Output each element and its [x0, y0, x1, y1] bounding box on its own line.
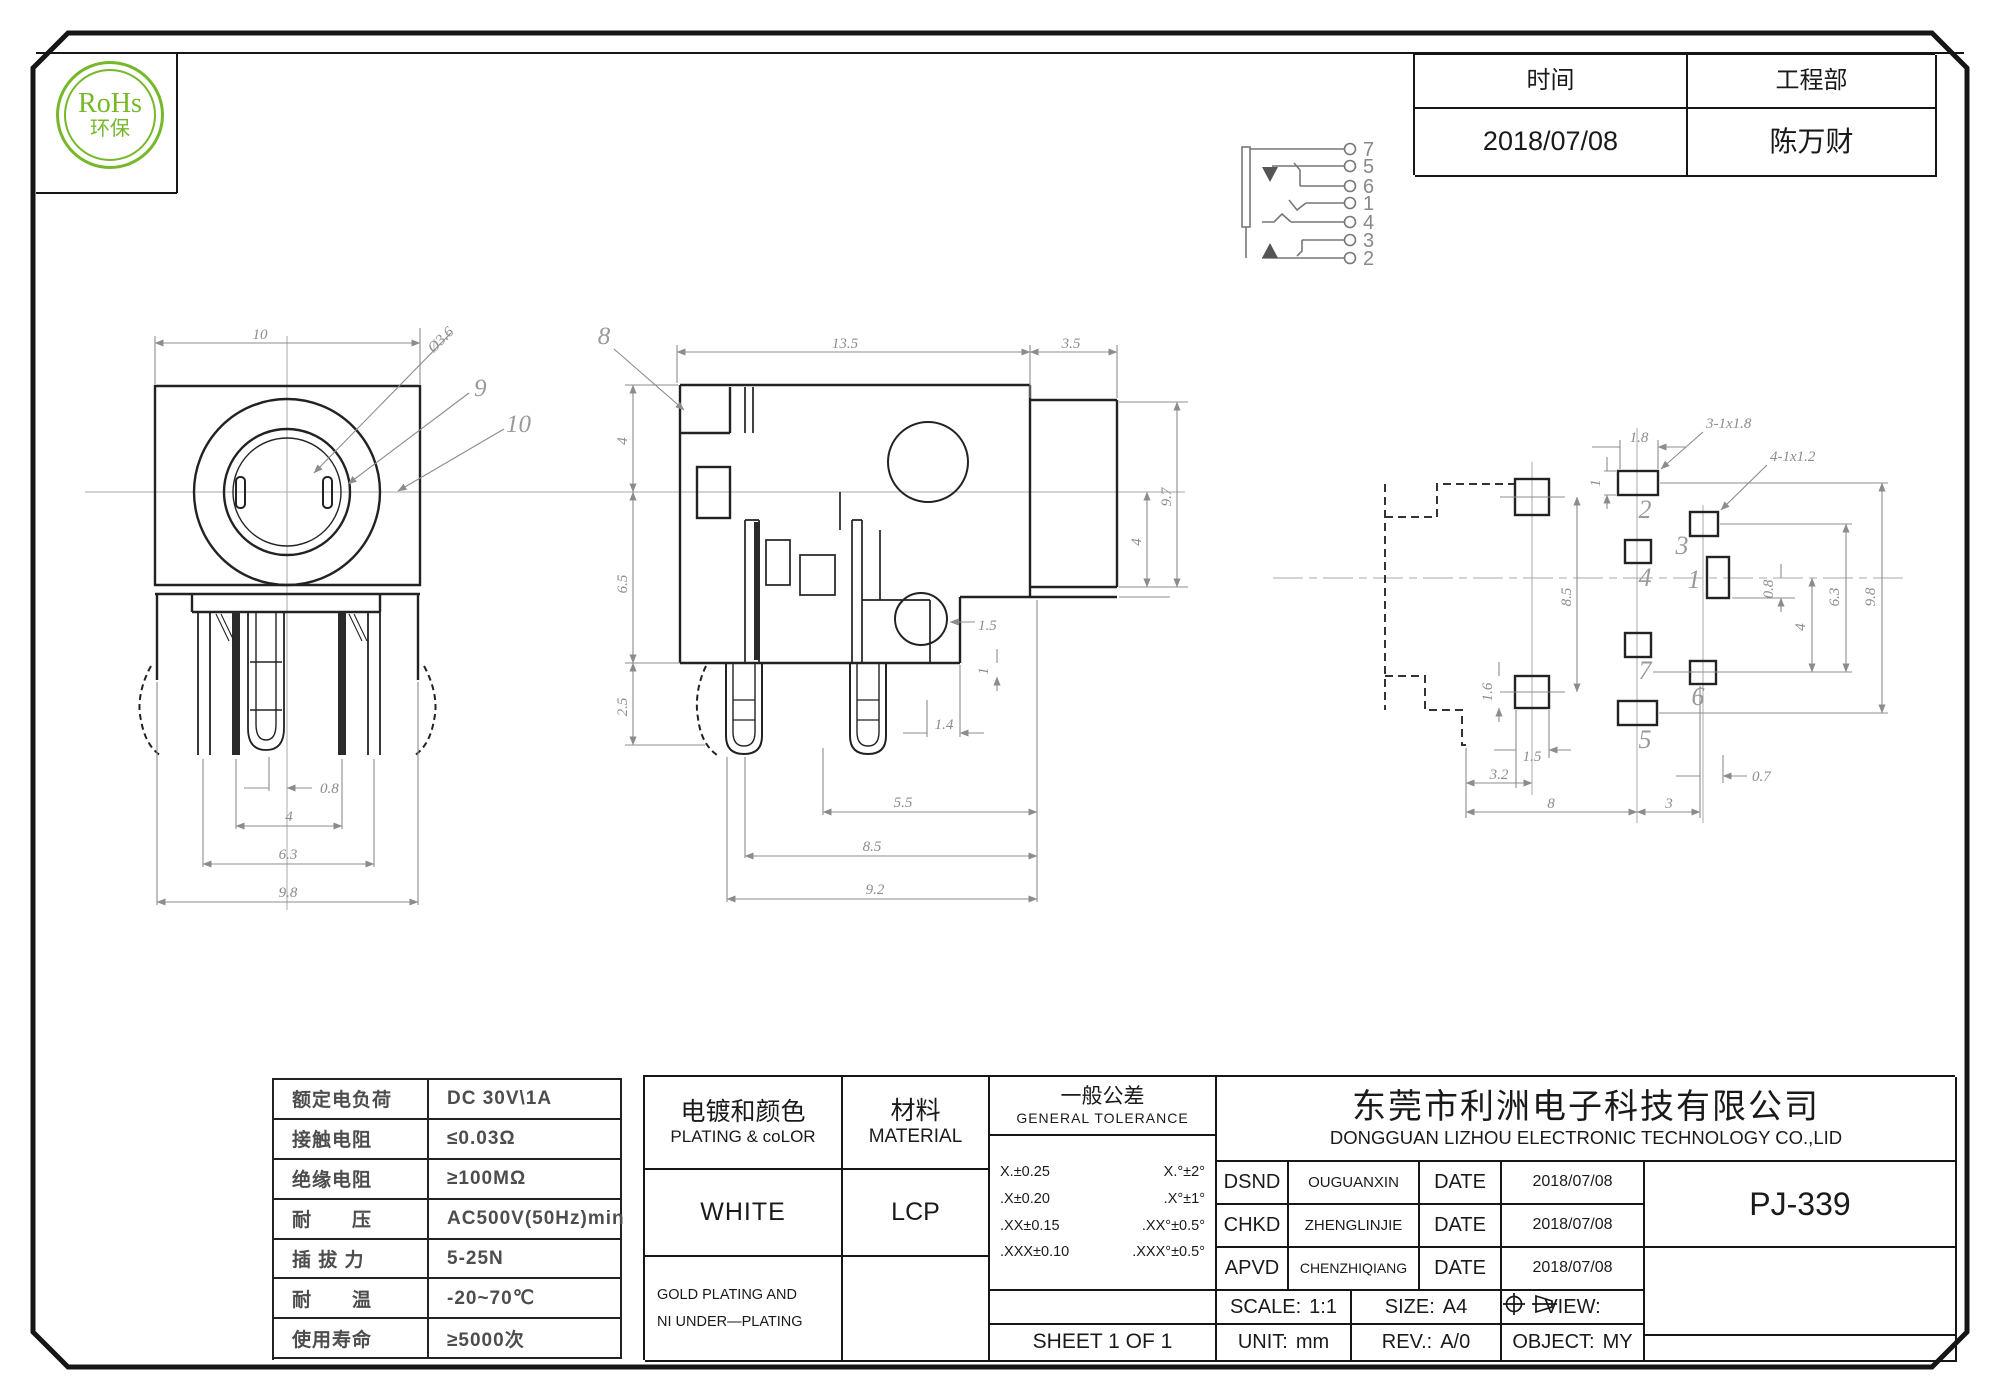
- dim-label: 5.5: [894, 795, 913, 811]
- dim-label: 8.5: [1559, 587, 1575, 606]
- scale-cell: SCALE:1:1: [1217, 1291, 1352, 1325]
- drawing-sheet: 10 Ø3.6 9 10 0.8 4 6.3 9.8: [0, 0, 2000, 1400]
- pad-number: 3: [1675, 531, 1689, 560]
- dim-label: 10: [253, 327, 269, 343]
- plating-header: 电镀和颜色 PLATING & coLOR: [645, 1077, 843, 1170]
- signoff-date: 2018/07/08: [1502, 1248, 1645, 1291]
- material-label-en: MATERIAL: [869, 1126, 963, 1148]
- rev-label: REV.:: [1382, 1331, 1432, 1354]
- pin-number: 2: [1363, 248, 1374, 270]
- dim-label: 9.8: [1863, 587, 1879, 606]
- dim-label: 8.5: [863, 839, 882, 855]
- jack-schematic: 7 5 6 1 4 3 2: [1242, 139, 1374, 270]
- signoff-name: ZHENGLINJIE: [1289, 1205, 1420, 1248]
- dim-label: 3.2: [1489, 767, 1509, 783]
- dim-label: 4: [1793, 623, 1809, 631]
- dim-label: 4: [615, 437, 631, 445]
- spec-label: 插 拔 力: [274, 1240, 429, 1280]
- signoff-date: 2018/07/08: [1502, 1162, 1645, 1205]
- tolerance-cell: .XX±0.15: [1000, 1213, 1060, 1240]
- dim-label: 1.5: [1523, 749, 1542, 765]
- object-label: OBJECT:: [1512, 1331, 1594, 1354]
- header-dept-value: 陈万财: [1688, 109, 1937, 177]
- view-cell: VIEW:: [1502, 1291, 1645, 1325]
- dim-label: 3.5: [1061, 336, 1081, 352]
- size-label: SIZE:: [1385, 1296, 1435, 1319]
- spec-label: 耐 温: [274, 1279, 429, 1319]
- tolerance-cell: .XX°±0.5°: [1142, 1213, 1205, 1240]
- spec-value: ≤0.03Ω: [429, 1120, 622, 1160]
- header-table: 时间 工程部 2018/07/08 陈万财: [1413, 53, 1935, 175]
- signoff-role: APVD: [1217, 1248, 1289, 1291]
- tolerance-cell: X.±0.25: [1000, 1159, 1050, 1186]
- object-cell: OBJECT:MY: [1502, 1325, 1645, 1362]
- rev-cell: REV.:A/0: [1352, 1325, 1502, 1362]
- signoff-date-label: DATE: [1420, 1205, 1502, 1248]
- dim-label: 8: [1547, 796, 1555, 812]
- note-label: 3-1x1.8: [1705, 416, 1752, 432]
- plating-label-en: PLATING & coLOR: [670, 1127, 815, 1147]
- rohs-subtitle: 环保: [90, 118, 130, 140]
- tolerance-cell: .X±0.20: [1000, 1186, 1050, 1213]
- tolerance-header: 一般公差 GENERAL TOLERANCE: [990, 1077, 1217, 1136]
- dim-label: 0.7: [1752, 769, 1772, 785]
- title-block: 电镀和颜色 PLATING & coLOR 材料 MATERIAL 一般公差 G…: [643, 1075, 1955, 1360]
- spec-value: DC 30V\1A: [429, 1080, 622, 1120]
- tolerance-label-en: GENERAL TOLERANCE: [1016, 1110, 1188, 1126]
- dim-label: 9.8: [279, 885, 298, 901]
- spec-label: 绝缘电阻: [274, 1160, 429, 1200]
- tolerance-cell: .XXX±0.10: [1000, 1239, 1069, 1266]
- tolerance-cell: .X°±1°: [1164, 1186, 1205, 1213]
- ref-label: 10: [506, 411, 532, 438]
- dim-label: 1.6: [1480, 682, 1496, 701]
- side-view-dimensions: [614, 345, 1188, 902]
- pad-number: 5: [1639, 725, 1652, 754]
- pad-number: 7: [1639, 656, 1653, 685]
- scale-value: 1:1: [1309, 1296, 1337, 1319]
- sheet-cell: SHEET 1 OF 1: [990, 1325, 1217, 1362]
- plating-note: GOLD PLATING AND NI UNDER—PLATING: [645, 1257, 843, 1362]
- dim-label: 3: [1664, 796, 1673, 812]
- header-dept-label: 工程部: [1688, 55, 1937, 109]
- scale-label: SCALE:: [1230, 1296, 1301, 1319]
- company-name-en: DONGGUAN LIZHOU ELECTRONIC TECHNOLOGY CO…: [1330, 1127, 1842, 1148]
- tolerance-cell: .XXX°±0.5°: [1132, 1239, 1205, 1266]
- dim-label: 6.3: [1827, 588, 1843, 607]
- spec-table: 额定电负荷 DC 30V\1A 接触电阻 ≤0.03Ω 绝缘电阻 ≥100MΩ …: [272, 1078, 622, 1360]
- size-cell: SIZE:A4: [1352, 1291, 1502, 1325]
- rohs-title: RoHs: [78, 90, 142, 118]
- dim-label: 9.2: [866, 882, 885, 898]
- dim-label: 4: [1129, 538, 1145, 546]
- dim-label: 1: [976, 667, 992, 675]
- pad-number: 2: [1639, 495, 1652, 524]
- dim-label: 1.8: [1630, 430, 1649, 446]
- dim-label: 0.8: [320, 781, 339, 797]
- pin-number: 5: [1363, 156, 1374, 178]
- dim-label: Ø3.6: [424, 324, 457, 357]
- dim-label: 6.3: [279, 847, 298, 863]
- material-header: 材料 MATERIAL: [843, 1077, 990, 1170]
- signoff-role: DSND: [1217, 1162, 1289, 1205]
- spec-value: AC500V(50Hz)min: [429, 1200, 622, 1240]
- signoff-date-label: DATE: [1420, 1248, 1502, 1291]
- tolerance-label-zh: 一般公差: [1061, 1085, 1145, 1109]
- plating-label-zh: 电镀和颜色: [680, 1098, 805, 1127]
- unit-value: mm: [1296, 1331, 1329, 1354]
- signoff-role: CHKD: [1217, 1205, 1289, 1248]
- header-time-label: 时间: [1415, 55, 1688, 109]
- dim-label: 13.5: [832, 336, 859, 352]
- note-label: 4-1x1.2: [1770, 449, 1816, 465]
- plating-value: WHITE: [645, 1170, 843, 1257]
- signoff-name: CHENZHIQIANG: [1289, 1248, 1420, 1291]
- unit-cell: UNIT:mm: [1217, 1325, 1352, 1362]
- sleeve-contact-triangle: [1262, 243, 1278, 258]
- ref-label: 8: [598, 323, 611, 350]
- object-value: MY: [1603, 1331, 1633, 1354]
- pcb-view-body: [1385, 484, 1515, 745]
- ref-label: 9: [474, 375, 487, 402]
- title-block-empty-cell: [1645, 1248, 1957, 1336]
- spec-label: 使用寿命: [274, 1319, 429, 1359]
- material-label-zh: 材料: [890, 1097, 940, 1126]
- dim-label: 1.5: [978, 618, 997, 634]
- tolerance-values: X.±0.25 X.°±2° .X±0.20 .X°±1° .XX±0.15 .…: [990, 1136, 1217, 1291]
- material-value: LCP: [843, 1170, 990, 1257]
- company-name-zh: 东莞市利洲电子科技有限公司: [1352, 1088, 1820, 1127]
- plating-note-line1: GOLD PLATING AND: [657, 1282, 797, 1308]
- pcb-view-labels: 1.8 1 3-1x1.8 4-1x1.2 8.5 0.8 4 6.3 9.8 …: [1480, 416, 1879, 812]
- spec-label: 接触电阻: [274, 1120, 429, 1160]
- dim-label: 4: [285, 809, 293, 825]
- pad-number: 4: [1639, 563, 1652, 592]
- dim-label: 2.5: [615, 697, 631, 716]
- signoff-name: OUGUANXIN: [1289, 1162, 1420, 1205]
- dim-label: 0.8: [1761, 579, 1777, 598]
- spec-label: 额定电负荷: [274, 1080, 429, 1120]
- header-time-value: 2018/07/08: [1415, 109, 1688, 177]
- unit-label: UNIT:: [1238, 1331, 1288, 1354]
- part-number: PJ-339: [1645, 1162, 1957, 1248]
- tip-contact-triangle: [1262, 167, 1278, 182]
- first-angle-projection-icon: [1502, 1291, 1560, 1317]
- spec-value: 5-25N: [429, 1240, 622, 1280]
- pad-number: 1: [1688, 565, 1701, 594]
- rohs-logo: RoHs 环保: [56, 61, 164, 169]
- title-block-empty-cell: [1645, 1336, 1957, 1362]
- size-value: A4: [1443, 1296, 1467, 1319]
- spec-value: ≥100MΩ: [429, 1160, 622, 1200]
- pad-number: 6: [1692, 682, 1705, 711]
- side-view: [680, 385, 1117, 755]
- plating-note-line2: NI UNDER—PLATING: [657, 1309, 803, 1335]
- material-empty-cell: [843, 1257, 990, 1362]
- company-cell: 东莞市利洲电子科技有限公司 DONGGUAN LIZHOU ELECTRONIC…: [1217, 1077, 1957, 1162]
- dim-label: 1.4: [935, 717, 954, 733]
- signoff-date-label: DATE: [1420, 1162, 1502, 1205]
- rev-value: A/0: [1440, 1331, 1470, 1354]
- signoff-date: 2018/07/08: [1502, 1205, 1645, 1248]
- spec-value: ≥5000次: [429, 1319, 622, 1359]
- dim-label: 1: [1588, 479, 1604, 487]
- rohs-logo-inner: RoHs 环保: [64, 69, 156, 161]
- front-view-dimensions: [155, 328, 504, 905]
- tolerance-empty-cell: [990, 1291, 1217, 1325]
- dim-label: 9.7: [1159, 486, 1175, 506]
- spec-value: -20~70℃: [429, 1279, 622, 1319]
- dim-label: 6.5: [615, 574, 631, 593]
- spec-label: 耐 压: [274, 1200, 429, 1240]
- tolerance-cell: X.°±2°: [1164, 1159, 1205, 1186]
